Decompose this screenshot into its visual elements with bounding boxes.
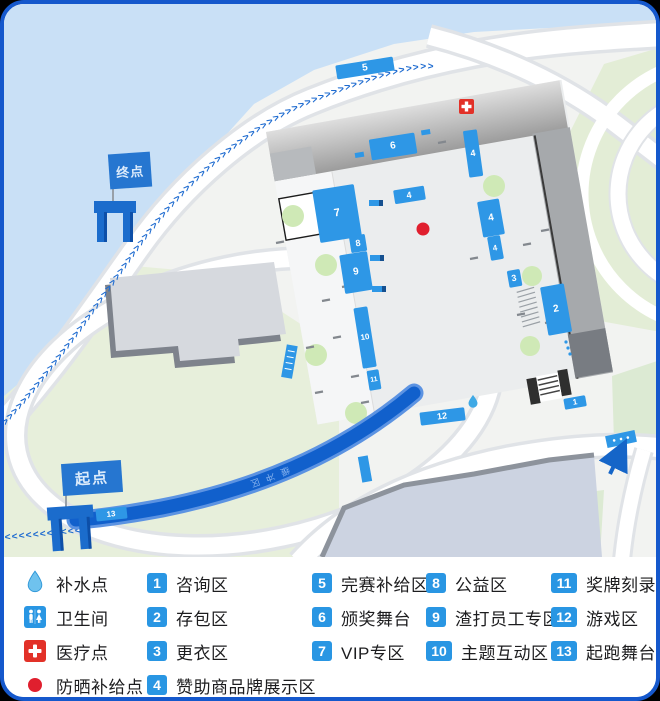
legend-label: 存包区 (176, 605, 229, 630)
legend-item-restroom: 卫生间 (22, 600, 144, 634)
zone-badge: 11 (551, 573, 577, 593)
zone-badge: 4 (147, 675, 167, 695)
legend-item-sun-supply: 防晒补给点 (22, 668, 144, 701)
legend-zones-column-2: 5完赛补给区 6颁奖舞台 7VIP专区 (312, 566, 429, 668)
zone-badge: 10 (426, 641, 452, 661)
finish-flag-label: 终点 (116, 164, 145, 181)
legend-label: 主题互动区 (461, 639, 549, 664)
legend-label: VIP专区 (341, 639, 405, 664)
legend-label: 游戏区 (586, 605, 639, 630)
legend-label: 公益区 (455, 571, 508, 596)
legend-item-zone-8: 8公益区 (426, 566, 560, 600)
legend-item-zone-6: 6颁奖舞台 (312, 600, 429, 634)
legend-item-zone-2: 2存包区 (147, 600, 316, 634)
legend-item-zone-7: 7VIP专区 (312, 634, 429, 668)
legend-zones-column-4: 11奖牌刻录 12游戏区 13起跑舞台 (551, 566, 656, 668)
zone-badge: 9 (426, 607, 446, 627)
legend-panel: 补水点 卫生间 医疗点 防晒补给点 (4, 557, 656, 697)
venue-map: >>>>>>>>>>>>>>>>>>>>>>>>>>>>>>>>>>>>>>>>… (4, 4, 660, 557)
zone-badge: 12 (551, 607, 577, 627)
legend-zones-column-3: 8公益区 9渣打员工专区 10主题互动区 (426, 566, 560, 668)
finish-flag: 终点 (108, 152, 152, 190)
zone-marker-8: 8 (349, 234, 367, 253)
medical-cross-icon (22, 638, 48, 664)
svg-text:11: 11 (370, 376, 379, 384)
svg-text:13: 13 (106, 509, 116, 519)
legend-facilities-column: 补水点 卫生间 医疗点 防晒补给点 (22, 566, 144, 701)
legend-item-zone-9: 9渣打员工专区 (426, 600, 560, 634)
legend-item-medical: 医疗点 (22, 634, 144, 668)
legend-item-zone-5: 5完赛补给区 (312, 566, 429, 600)
start-flag-label: 起点 (74, 469, 110, 488)
legend-label: 渣打员工专区 (455, 605, 560, 630)
legend-label: 防晒补给点 (56, 673, 144, 698)
zone-badge: 7 (312, 641, 332, 661)
legend-item-zone-11: 11奖牌刻录 (551, 566, 656, 600)
zone-badge: 8 (426, 573, 446, 593)
legend-item-zone-3: 3更衣区 (147, 634, 316, 668)
zone-badge: 13 (551, 641, 577, 661)
legend-label: 卫生间 (56, 605, 109, 630)
medical-cross-icon (459, 99, 474, 114)
sun-supply-dot-icon (22, 672, 48, 698)
legend-label: 补水点 (56, 571, 109, 596)
legend-item-zone-13: 13起跑舞台 (551, 634, 656, 668)
legend-zones-column-1: 1咨询区 2存包区 3更衣区 4赞助商品牌展示区 (147, 566, 316, 701)
zone-badge: 5 (312, 573, 332, 593)
legend-label: 颁奖舞台 (341, 605, 411, 630)
legend-label: 起跑舞台 (586, 639, 656, 664)
legend-label: 更衣区 (176, 639, 229, 664)
svg-text:12: 12 (436, 410, 447, 421)
legend-label: 奖牌刻录 (586, 571, 656, 596)
legend-label: 医疗点 (56, 639, 109, 664)
event-map-card: >>>>>>>>>>>>>>>>>>>>>>>>>>>>>>>>>>>>>>>>… (0, 0, 660, 701)
zone-badge: 3 (147, 641, 167, 661)
start-flag: 起点 (61, 460, 123, 496)
legend-item-zone-1: 1咨询区 (147, 566, 316, 600)
zone-marker-7: 7 (312, 184, 362, 243)
legend-item-zone-12: 12游戏区 (551, 600, 656, 634)
legend-item-water: 补水点 (22, 566, 144, 600)
water-drop-icon (22, 570, 48, 596)
zone-badge: 2 (147, 607, 167, 627)
legend-label: 完赛补给区 (341, 571, 429, 596)
zone-badge: 6 (312, 607, 332, 627)
sun-supply-dot-icon (417, 223, 430, 236)
restroom-icon (22, 604, 48, 630)
legend-label: 赞助商品牌展示区 (176, 673, 316, 698)
legend-item-zone-4: 4赞助商品牌展示区 (147, 668, 316, 701)
venue-map-canvas: >>>>>>>>>>>>>>>>>>>>>>>>>>>>>>>>>>>>>>>>… (4, 4, 660, 557)
legend-item-zone-10: 10主题互动区 (426, 634, 560, 668)
zone-badge: 1 (147, 573, 167, 593)
legend-label: 咨询区 (176, 571, 229, 596)
